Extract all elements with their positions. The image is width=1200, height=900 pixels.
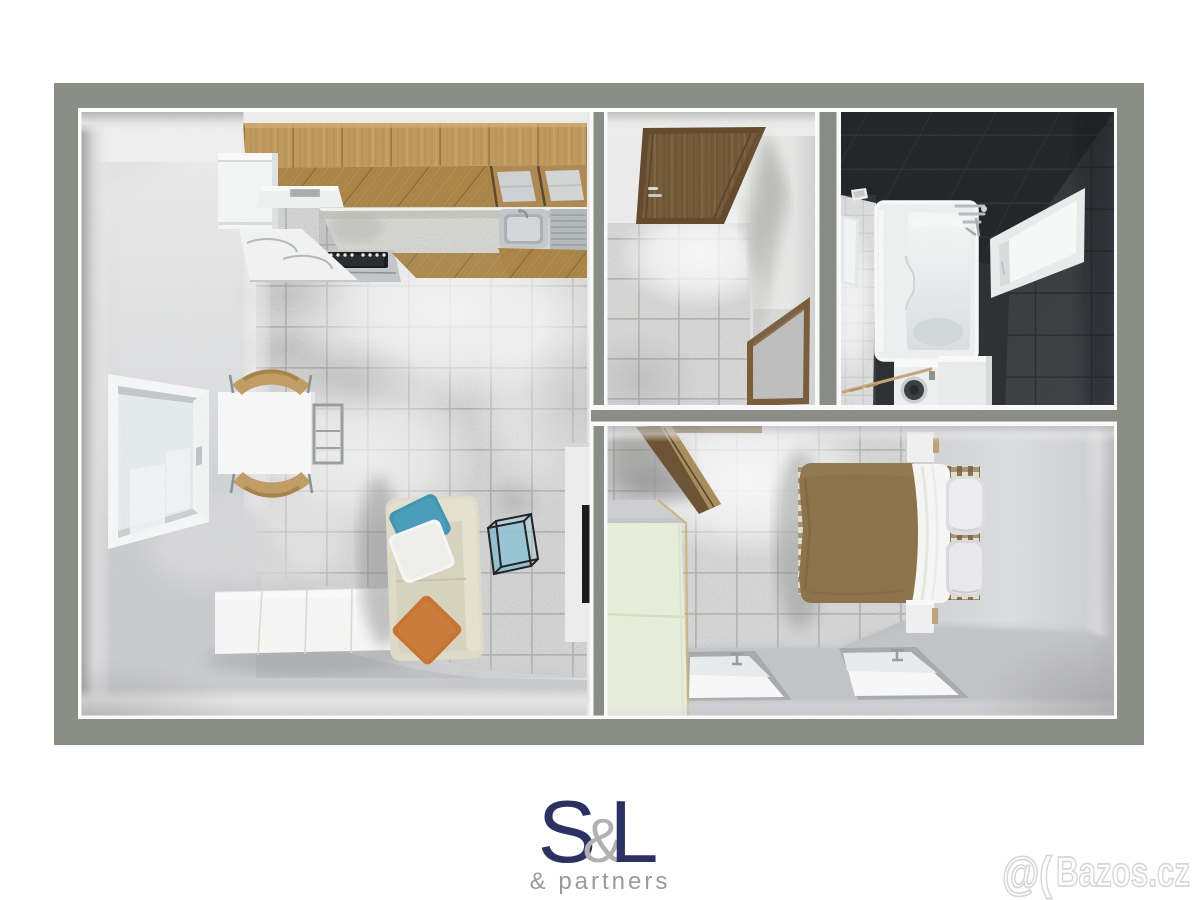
- svg-text:L: L: [610, 782, 659, 881]
- svg-text:& partners: & partners: [530, 868, 671, 895]
- svg-text:Bazos.cz: Bazos.cz: [1056, 848, 1190, 895]
- svg-text:@(: @(: [1002, 847, 1053, 899]
